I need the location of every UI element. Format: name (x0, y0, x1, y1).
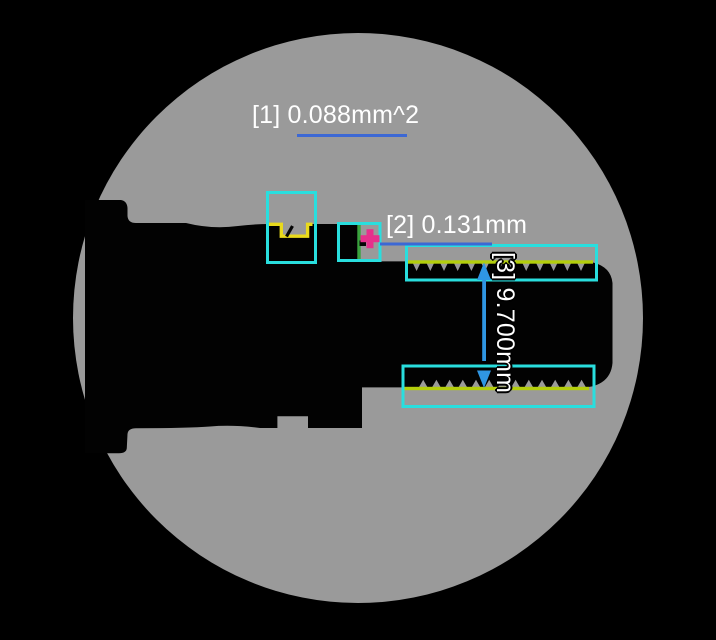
inspection-viewport[interactable]: [1] 0.088mm^2 [2] 0.131mm [3] 9.700mm (0, 0, 716, 640)
measurement-canvas[interactable] (0, 0, 716, 640)
measure-line-area[interactable] (297, 134, 407, 137)
measurement-label-distance[interactable]: [3] 9.700mm (490, 252, 519, 393)
measurement-label-width[interactable]: [2] 0.131mm (386, 211, 527, 240)
measurement-label-area[interactable]: [1] 0.088mm^2 (252, 101, 419, 130)
measure-line-width[interactable] (380, 243, 492, 246)
